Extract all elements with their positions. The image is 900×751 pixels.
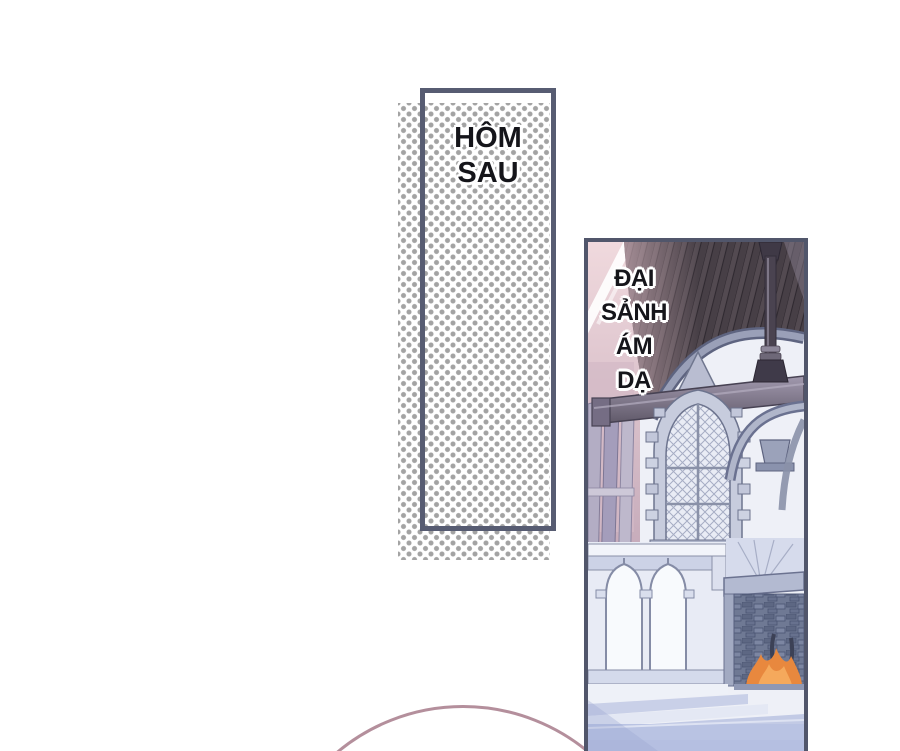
caption-hom-sau: HÔM SAU (420, 121, 556, 192)
quoin (646, 458, 658, 468)
quoin (646, 432, 658, 442)
quoin (646, 484, 658, 494)
caption-line: ÁM (588, 330, 680, 364)
fireplace (724, 538, 804, 690)
balustrade-rail (588, 670, 728, 684)
quoin (738, 484, 750, 494)
great-hall-panel: ĐẠI SẢNH ÁM DẠ (584, 238, 808, 751)
quoin (646, 510, 658, 520)
capital (596, 590, 606, 598)
caption-line: ĐẠI (588, 262, 680, 296)
quoin (738, 510, 750, 520)
beam-end (592, 398, 610, 426)
column-ring (588, 488, 634, 496)
caption-line: SAU (420, 156, 556, 191)
arch-opening (650, 564, 686, 672)
caption-line: SẢNH (588, 296, 680, 330)
comic-page: HÔM SAU (0, 0, 900, 751)
fireplace-pilaster (724, 594, 734, 686)
quoin (654, 408, 665, 417)
capital (684, 590, 694, 598)
lamp-ring (760, 353, 781, 360)
lamp-base (753, 360, 788, 382)
pendant-corbel (760, 440, 790, 464)
cornice (588, 544, 726, 556)
caption-line: DẠ (588, 364, 680, 398)
lamp-ring (761, 346, 780, 352)
caption-line: HÔM (420, 121, 556, 156)
frieze (588, 556, 724, 570)
capital (640, 590, 652, 598)
quoin (731, 408, 742, 417)
arch-opening (606, 564, 642, 672)
hearth-edge (734, 684, 804, 690)
caption-dai-sanh-am-da: ĐẠI SẢNH ÁM DẠ (588, 262, 680, 398)
